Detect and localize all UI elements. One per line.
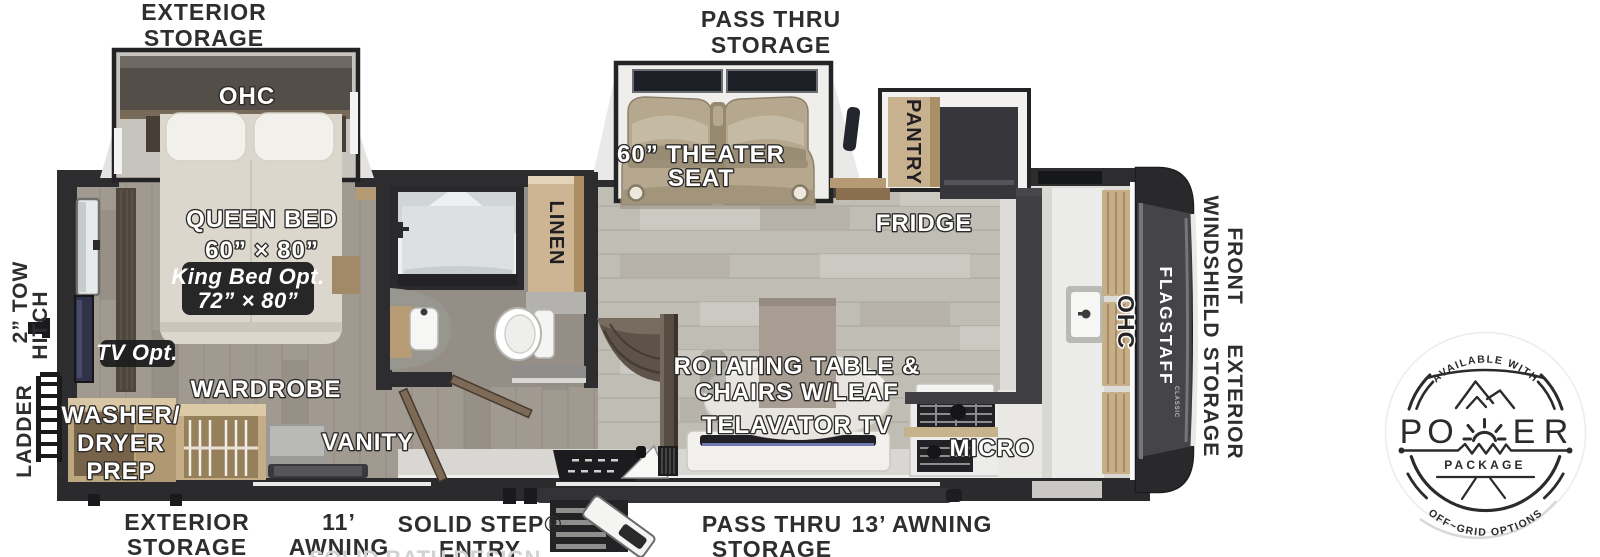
svg-text:SEAT: SEAT — [668, 165, 734, 192]
svg-text:FRONT: FRONT — [1223, 227, 1246, 304]
svg-text:QUEEN BED: QUEEN BED — [186, 206, 338, 233]
svg-text:LADDER: LADDER — [13, 384, 36, 478]
svg-text:72” × 80”: 72” × 80” — [198, 288, 299, 313]
svg-text:STORAGE: STORAGE — [1199, 347, 1222, 457]
svg-text:DRYER: DRYER — [77, 430, 165, 457]
svg-text:HITCH: HITCH — [29, 290, 52, 359]
svg-text:WASHER/: WASHER/ — [61, 402, 180, 429]
svg-text:PASS THRU: PASS THRU — [701, 6, 841, 32]
svg-text:STORAGE: STORAGE — [144, 25, 264, 51]
svg-text:CHAIRS W/LEAF: CHAIRS W/LEAF — [695, 379, 899, 406]
svg-text:STORAGE: STORAGE — [711, 32, 831, 58]
svg-text:VANITY: VANITY — [322, 429, 414, 456]
svg-text:PASS THRU: PASS THRU — [702, 511, 842, 537]
svg-text:FRIDGE: FRIDGE — [876, 210, 973, 237]
svg-text:EXTERIOR: EXTERIOR — [124, 509, 250, 535]
svg-text:PACKAGE: PACKAGE — [1444, 458, 1526, 472]
svg-text:FLAGSTAFF: FLAGSTAFF — [1156, 267, 1176, 386]
svg-text:PREP: PREP — [86, 458, 155, 485]
svg-text:WARDROBE: WARDROBE — [191, 376, 342, 403]
svg-text:11’: 11’ — [322, 509, 356, 535]
svg-text:King Bed Opt.: King Bed Opt. — [171, 264, 324, 289]
svg-text:TELAVATOR TV: TELAVATOR TV — [702, 412, 892, 439]
svg-text:SOLID BATH DESIGN: SOLID BATH DESIGN — [309, 546, 541, 557]
svg-text:13’ AWNING: 13’ AWNING — [852, 511, 993, 537]
svg-text:OHC: OHC — [219, 83, 275, 110]
svg-text:ROTATING TABLE &: ROTATING TABLE & — [674, 353, 921, 380]
svg-text:WINDSHIELD: WINDSHIELD — [1199, 196, 1222, 339]
svg-text:STORAGE: STORAGE — [127, 534, 247, 557]
svg-text:MICRO: MICRO — [950, 435, 1035, 462]
svg-text:STORAGE: STORAGE — [712, 536, 832, 557]
svg-text:E: E — [1513, 413, 1536, 451]
svg-text:R: R — [1544, 413, 1569, 451]
svg-text:CLASSIC: CLASSIC — [1173, 386, 1179, 418]
svg-text:SOLID STEP®: SOLID STEP® — [398, 511, 563, 537]
svg-text:60” THEATER: 60” THEATER — [617, 141, 785, 168]
svg-text:P: P — [1400, 413, 1423, 451]
svg-text:LINEN: LINEN — [545, 201, 567, 266]
svg-text:PANTRY: PANTRY — [902, 99, 924, 185]
svg-text:O: O — [1427, 413, 1453, 451]
svg-text:EXTERIOR: EXTERIOR — [141, 0, 267, 25]
svg-text:OHC: OHC — [1113, 295, 1139, 349]
svg-text:EXTERIOR: EXTERIOR — [1223, 344, 1246, 459]
svg-text:60” × 80”: 60” × 80” — [205, 237, 319, 264]
svg-text:TV Opt.: TV Opt. — [96, 340, 178, 365]
